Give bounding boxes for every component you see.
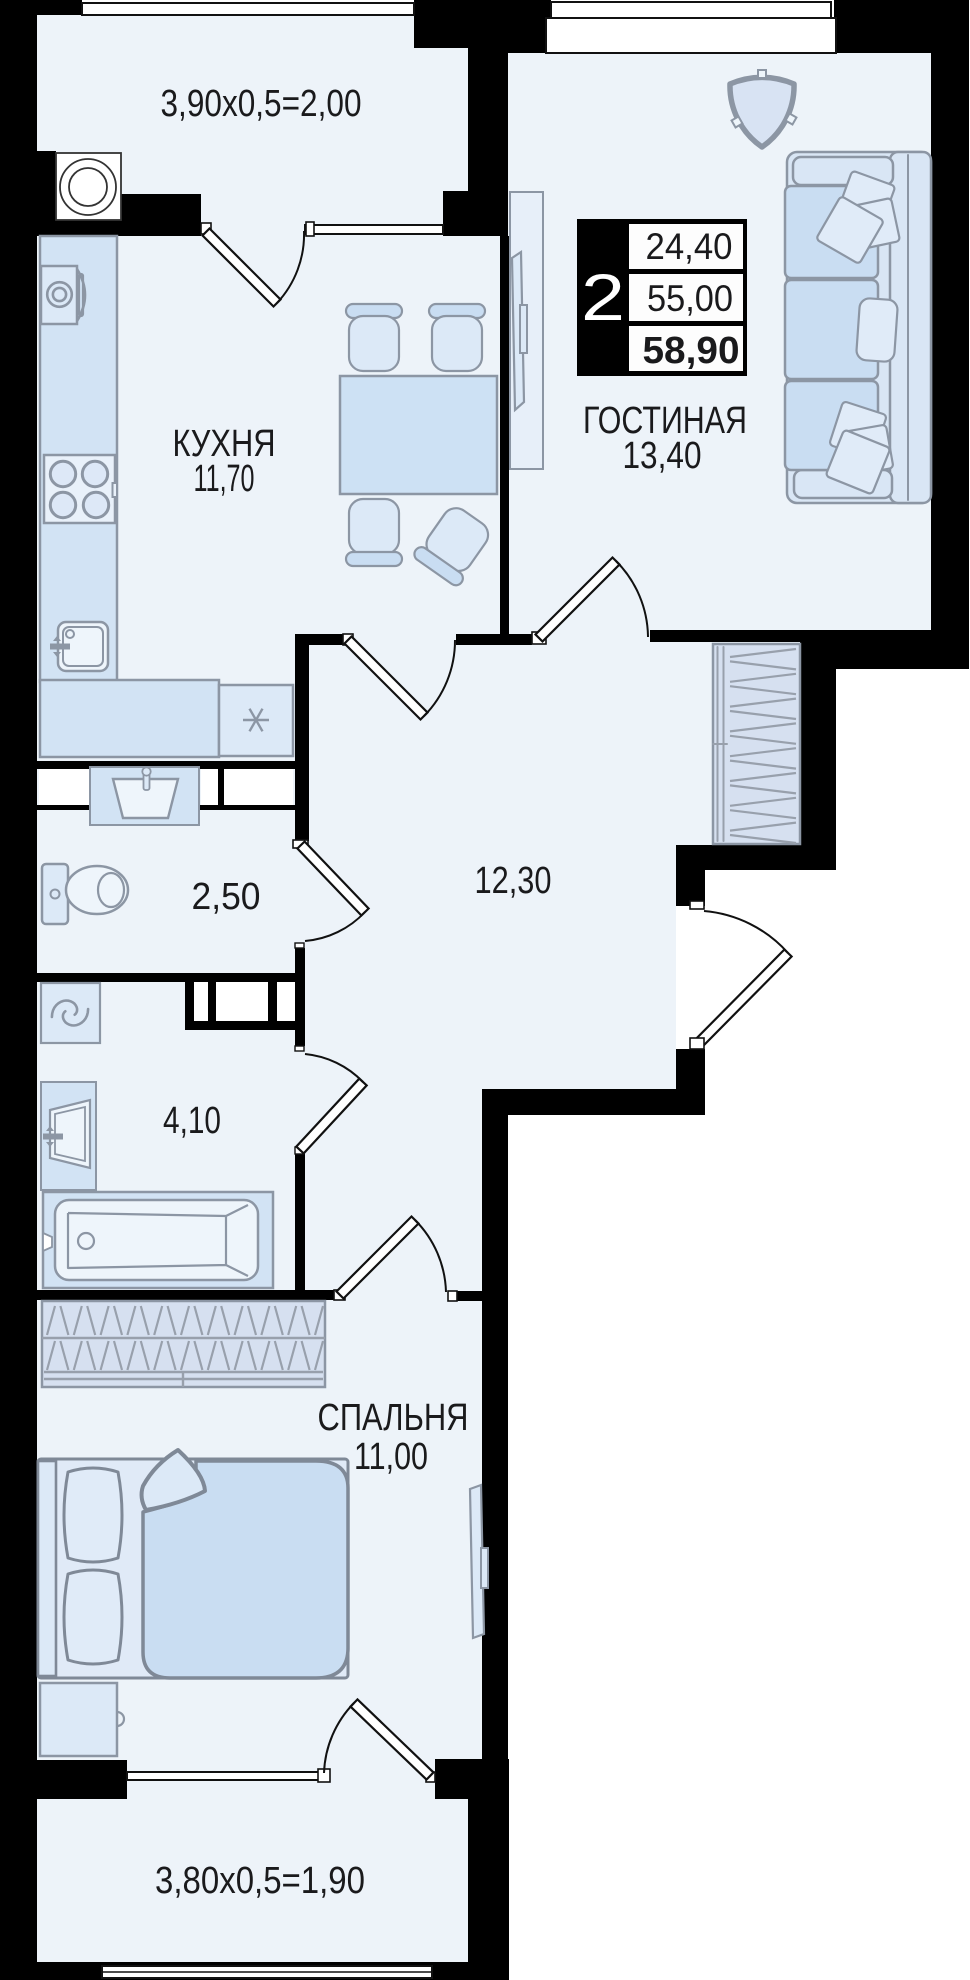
svg-text:12,30: 12,30 [475, 860, 552, 902]
svg-text:58,90: 58,90 [643, 330, 740, 372]
svg-text:2,50: 2,50 [192, 876, 261, 918]
svg-text:4,10: 4,10 [163, 1100, 221, 1142]
svg-text:2: 2 [581, 260, 625, 334]
svg-text:3,90x0,5=2,00: 3,90x0,5=2,00 [161, 83, 362, 125]
svg-text:СПАЛЬНЯ: СПАЛЬНЯ [318, 1397, 469, 1439]
svg-text:24,40: 24,40 [646, 226, 733, 267]
svg-text:11,00: 11,00 [354, 1436, 428, 1478]
svg-text:3,80x0,5=1,90: 3,80x0,5=1,90 [155, 1860, 365, 1902]
svg-text:13,40: 13,40 [623, 435, 702, 477]
svg-text:55,00: 55,00 [647, 278, 733, 319]
svg-text:11,70: 11,70 [194, 458, 255, 500]
